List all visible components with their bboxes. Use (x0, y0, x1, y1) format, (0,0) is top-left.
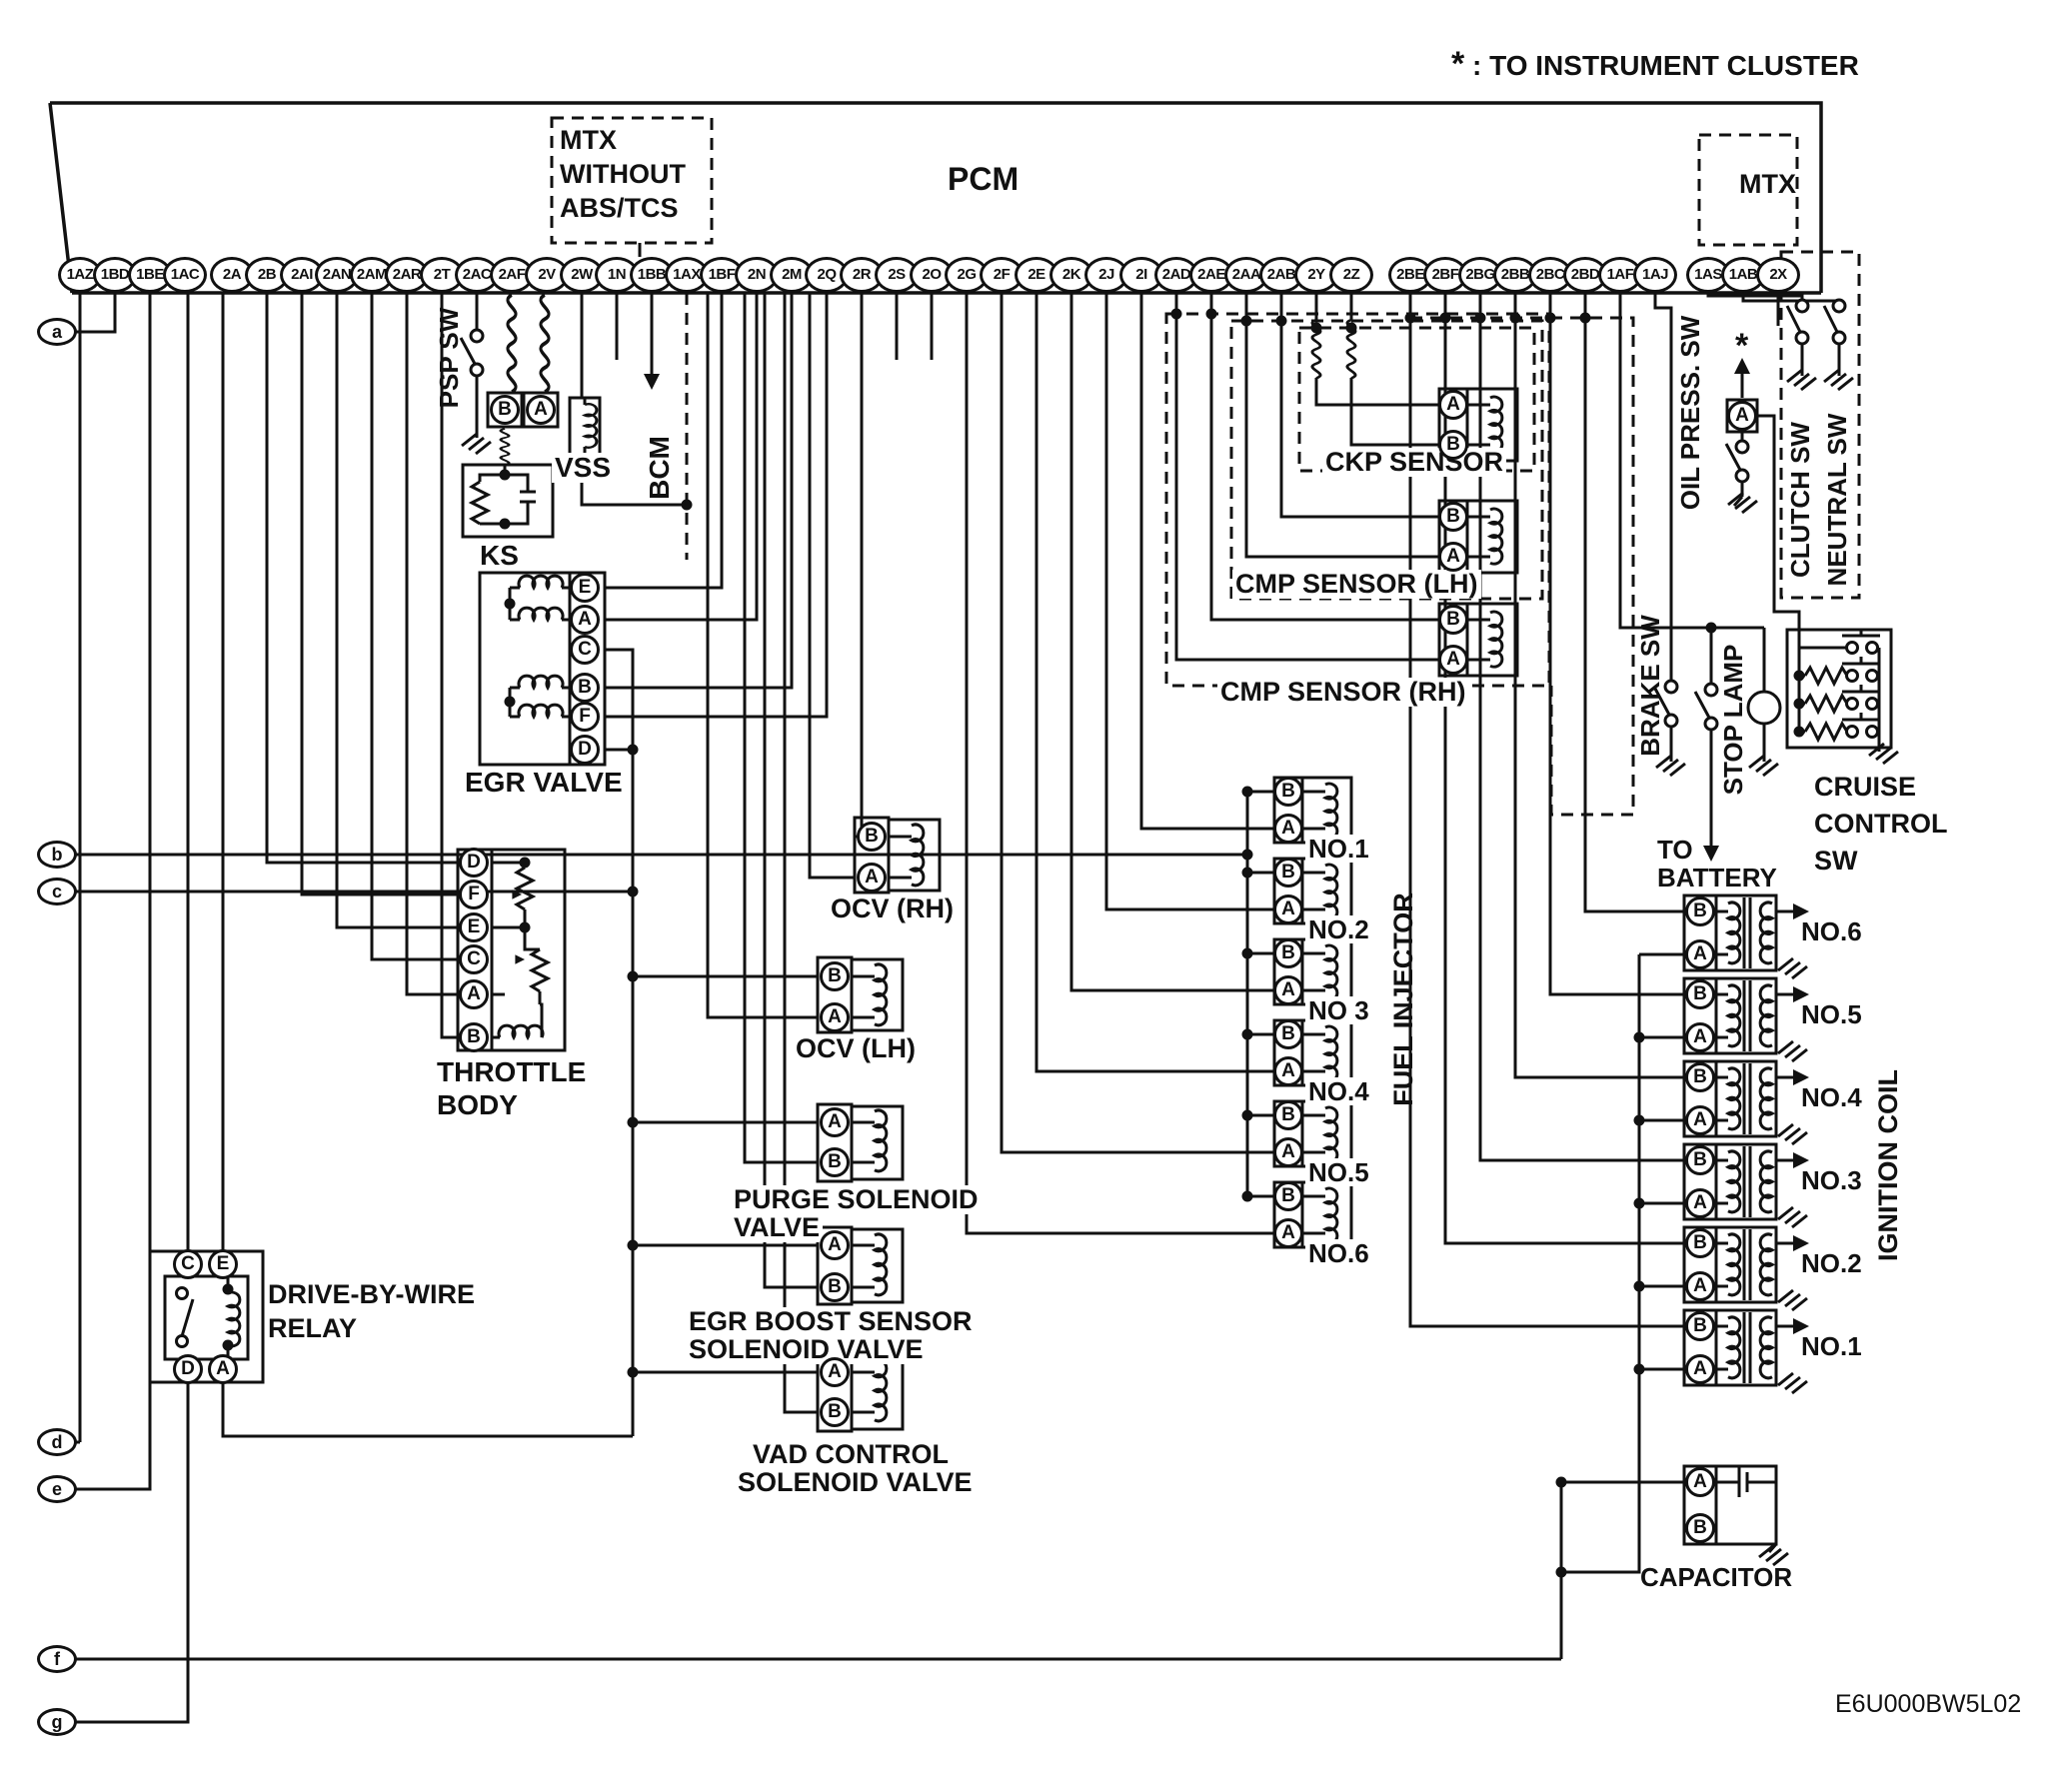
coil1-pin-b: B (1685, 1311, 1715, 1341)
egr-pin-c: C (570, 635, 600, 665)
inj3-pin-a: A (1273, 975, 1303, 1005)
cruise-label3: SW (1814, 847, 1858, 876)
port-d: d (37, 1428, 77, 1456)
port-b: b (37, 841, 77, 869)
inj3-pin-b: B (1273, 938, 1303, 968)
throttle-body-label1: THROTTLE (437, 1057, 586, 1087)
cmp-sensor-lh-label: CMP SENSOR (LH) (1232, 570, 1481, 599)
ckp-pin-b: B (1438, 430, 1468, 460)
coil-no6-label: NO.6 (1798, 917, 1865, 945)
coil3-pin-a: A (1685, 1188, 1715, 1218)
instrument-cluster-note: * : TO INSTRUMENT CLUSTER (1451, 46, 1859, 83)
junction-dots (223, 309, 1805, 1578)
ckp-sensor-label: CKP SENSOR (1322, 448, 1506, 477)
throttle-body-label2: BODY (437, 1090, 518, 1120)
ocv-rh-label: OCV (RH) (828, 895, 957, 923)
cmp-sensor-rh-label: CMP SENSOR (RH) (1217, 678, 1469, 707)
throttle-pin-a: A (459, 979, 489, 1009)
inj1-pin-a: A (1273, 814, 1303, 844)
coil5-pin-a: A (1685, 1022, 1715, 1052)
egr-pin-a: A (570, 605, 600, 635)
egr-boost-pin-b: B (820, 1272, 850, 1302)
port-e: e (37, 1475, 77, 1503)
egr-pin-b: B (570, 673, 600, 703)
inj5-pin-a: A (1273, 1137, 1303, 1167)
to-battery-label1: TO (1657, 836, 1693, 864)
inj2-pin-b: B (1273, 858, 1303, 888)
port-g: g (37, 1708, 77, 1736)
bcm-label: BCM (643, 338, 677, 598)
cmp-lh-pin-b: B (1438, 502, 1468, 532)
cmp-rh-pin-b: B (1438, 605, 1468, 635)
mtx-top-label: MTX (1739, 170, 1796, 199)
cmp-lh-pin-a: A (1438, 542, 1468, 572)
ocv-rh-pin-b: B (857, 822, 887, 852)
vad-pin-a: A (820, 1357, 850, 1387)
ocv-lh-label: OCV (LH) (793, 1034, 919, 1063)
port-c: c (37, 878, 77, 905)
inj6-pin-a: A (1273, 1218, 1303, 1248)
coil4-pin-b: B (1685, 1062, 1715, 1092)
clutch-sw-label: CLUTCH SW (1783, 370, 1817, 630)
egr-pin-e: E (570, 573, 600, 603)
inj6-pin-b: B (1273, 1181, 1303, 1211)
mtx-without-line1: MTX (560, 126, 617, 155)
coil-no4-label: NO.4 (1798, 1083, 1865, 1111)
vad-pin-b: B (820, 1397, 850, 1427)
egr-boost-pin-a: A (820, 1230, 850, 1260)
inj4-pin-a: A (1273, 1056, 1303, 1086)
mtx-without-line3: ABS/TCS (560, 194, 679, 223)
oil-press-sw-label: OIL PRESS. SW (1673, 283, 1707, 543)
mtx-without-line2: WITHOUT (560, 160, 686, 189)
wires-solid (76, 243, 1880, 1722)
injector-no2-label: NO.2 (1305, 915, 1372, 943)
port-f: f (37, 1645, 77, 1673)
cruise-label1: CRUISE (1814, 773, 1916, 802)
fuel-injector-label: FUEL INJECTOR (1386, 870, 1420, 1129)
inj1-pin-b: B (1273, 777, 1303, 807)
coil-no5-label: NO.5 (1798, 1000, 1865, 1028)
component-outlines (150, 389, 1891, 1544)
coil5-pin-b: B (1685, 979, 1715, 1009)
relay-pin-e: E (208, 1249, 238, 1279)
inj5-pin-b: B (1273, 1100, 1303, 1130)
oil-pin-a: A (1727, 401, 1757, 431)
coil3-pin-b: B (1685, 1145, 1715, 1175)
relay-pin-c: C (173, 1249, 203, 1279)
egr-boost-label2: SOLENOID VALVE (686, 1335, 927, 1364)
brake-sw-label: BRAKE SW (1633, 556, 1667, 816)
coil-no1-label: NO.1 (1798, 1332, 1865, 1360)
coil4-pin-a: A (1685, 1105, 1715, 1135)
pcm-pin: 1AJ (1633, 257, 1677, 293)
injector-no5-label: NO.5 (1305, 1158, 1372, 1186)
neutral-sw-label: NEUTRAL SW (1820, 370, 1854, 630)
injector-no4-label: NO.4 (1305, 1077, 1372, 1105)
ckp-pin-a: A (1438, 390, 1468, 420)
ks-conn-a: A (526, 395, 556, 425)
ignition-coil-label: IGNITION COIL (1871, 1035, 1905, 1295)
coil2-pin-a: A (1685, 1271, 1715, 1301)
coil1-pin-a: A (1685, 1354, 1715, 1384)
cmp-rh-pin-a: A (1438, 645, 1468, 675)
diagram-code: E6U000BW5L02 (1835, 1691, 2021, 1718)
throttle-pin-b: B (459, 1022, 489, 1052)
purge-pin-a: A (820, 1107, 850, 1137)
coil2-pin-b: B (1685, 1228, 1715, 1258)
throttle-pin-e: E (459, 912, 489, 942)
dbw-relay-label1: DRIVE-BY-WIRE (268, 1280, 475, 1309)
ocv-rh-pin-a: A (857, 863, 887, 893)
stop-lamp-label: STOP LAMP (1716, 590, 1750, 850)
vad-label2: SOLENOID VALVE (735, 1468, 976, 1497)
port-a: a (37, 318, 77, 346)
coil6-pin-a: A (1685, 939, 1715, 969)
throttle-pin-c: C (459, 944, 489, 974)
capacitor-label: CAPACITOR (1640, 1563, 1792, 1591)
purge-label2: VALVE (731, 1213, 823, 1242)
ks-conn-b: B (490, 395, 520, 425)
relay-pin-d: D (173, 1354, 203, 1384)
ks-label: KS (480, 541, 519, 571)
to-battery-label2: BATTERY (1657, 864, 1777, 892)
pcm-label: PCM (948, 162, 1019, 197)
injector-no6-label: NO.6 (1305, 1239, 1372, 1267)
vss-label: VSS (552, 453, 614, 483)
purge-label1: PURGE SOLENOID (731, 1185, 982, 1214)
egr-valve-label: EGR VALVE (462, 768, 626, 798)
injector-no1-label: NO.1 (1305, 835, 1372, 863)
oil-press-asterisk-icon: * (1735, 328, 1748, 365)
pcm-pin: 2X (1756, 257, 1800, 293)
inj2-pin-a: A (1273, 895, 1303, 924)
ocv-lh-pin-a: A (820, 1002, 850, 1032)
pcm-pin: 1AC (163, 257, 207, 293)
coil-no3-label: NO.3 (1798, 1166, 1865, 1194)
vad-label1: VAD CONTROL (750, 1440, 952, 1469)
cruise-label2: CONTROL (1814, 810, 1947, 839)
injector-no3-label: NO 3 (1305, 996, 1372, 1024)
asterisk-icon: * (1451, 45, 1464, 83)
throttle-pin-d: D (459, 848, 489, 878)
egr-pin-f: F (570, 702, 600, 732)
purge-pin-b: B (820, 1147, 850, 1177)
relay-pin-a: A (208, 1354, 238, 1384)
inj4-pin-b: B (1273, 1019, 1303, 1049)
dbw-relay-label2: RELAY (268, 1314, 357, 1343)
capacitor-pin-a: A (1685, 1467, 1715, 1497)
wiring-diagram: * : TO INSTRUMENT CLUSTER PCM MTX MTX WI… (0, 0, 2065, 1792)
throttle-pin-f: F (459, 880, 489, 909)
egr-boost-label1: EGR BOOST SENSOR (686, 1307, 976, 1336)
coil6-pin-b: B (1685, 896, 1715, 926)
pcm-pin: 2Z (1329, 257, 1373, 293)
coil-no2-label: NO.2 (1798, 1249, 1865, 1277)
egr-pin-d: D (570, 735, 600, 765)
capacitor-pin-b: B (1685, 1513, 1715, 1543)
ocv-lh-pin-b: B (820, 961, 850, 991)
